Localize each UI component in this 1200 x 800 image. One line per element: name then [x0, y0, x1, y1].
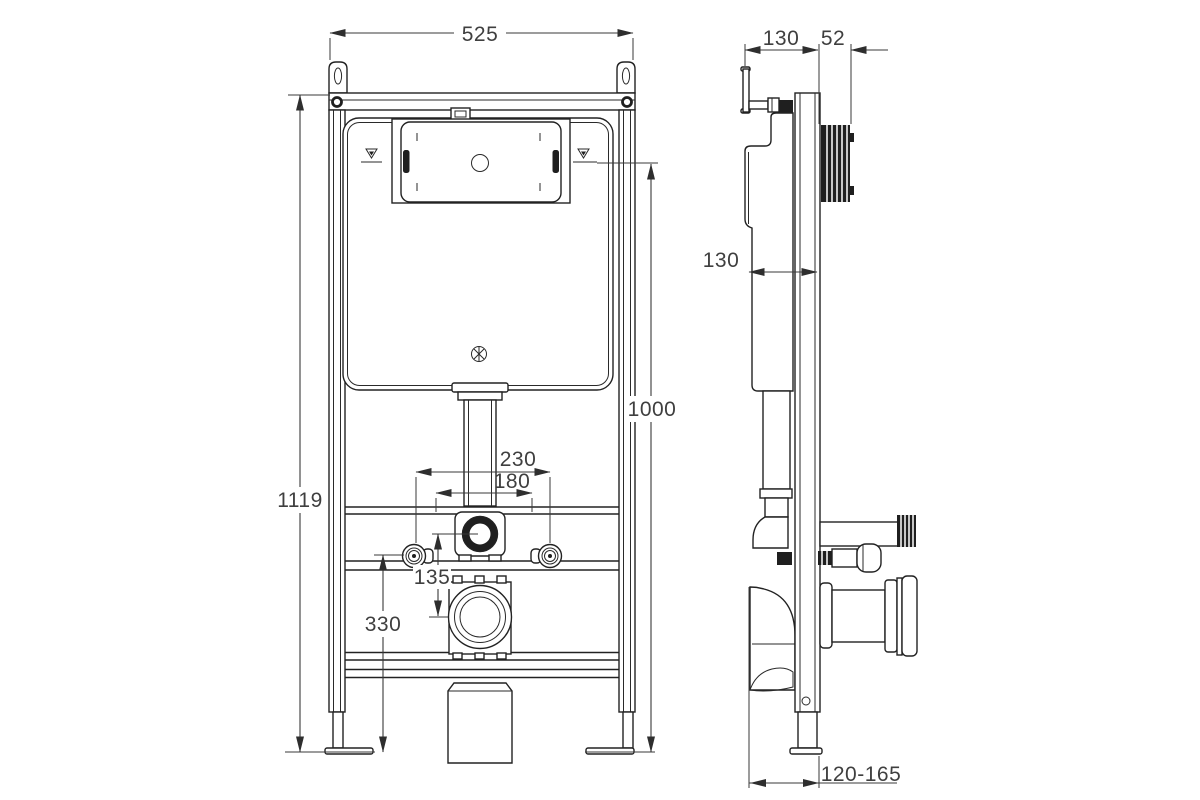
water-inlet-side — [820, 515, 916, 547]
foot-plate-right — [586, 748, 634, 754]
fixing-rod-right — [531, 545, 562, 568]
dim-label-120-165: 120-165 — [821, 763, 902, 786]
outlet-connector-side — [820, 576, 917, 656]
panel-inner — [401, 122, 561, 202]
outlet-socket-front — [449, 576, 512, 659]
bracket-clamp — [779, 100, 793, 113]
cistern-side — [745, 113, 793, 391]
dim-label-130-top: 130 — [763, 27, 800, 50]
cistern-top-clip — [451, 108, 470, 120]
outlet-circle — [449, 586, 512, 649]
dim-label-330: 330 — [365, 613, 402, 636]
dim-label-52: 52 — [821, 27, 845, 50]
mounting-tab-right — [617, 62, 635, 93]
top-crossbar — [329, 93, 635, 110]
frame-column-side — [790, 93, 822, 754]
wall-bracket-side — [741, 67, 793, 113]
bolt-left — [333, 98, 342, 107]
leg-right — [623, 712, 633, 748]
dim-label-1000: 1000 — [628, 398, 677, 421]
soil-elbow-side — [749, 587, 795, 788]
mounting-tab-left — [329, 62, 347, 93]
panel-clip-right — [553, 150, 560, 173]
dim-label-1119: 1119 — [277, 489, 323, 512]
pan-bracket-side — [777, 552, 792, 565]
dim-label-180: 180 — [494, 470, 531, 493]
bolt-right — [623, 98, 632, 107]
dim-side-top-depth: 130 — [745, 27, 818, 66]
flush-elbow-front — [455, 512, 505, 561]
dim-front-width: 525 — [330, 21, 633, 60]
dim-actuator-depth: 52 — [819, 27, 888, 124]
technical-drawing-canvas: 525 1119 1000 230 180 — [0, 0, 1200, 800]
side-view: 130 52 130 120-165 — [703, 27, 917, 788]
panel-clip-left — [403, 150, 410, 173]
foot-plate-side — [790, 748, 822, 754]
valve-stub-side — [818, 544, 881, 572]
fixing-rod-left — [403, 545, 434, 568]
leg-side — [798, 712, 817, 748]
front-view: 525 1119 1000 230 180 — [272, 21, 679, 763]
bottom-bend-front — [448, 683, 512, 763]
leg-left — [333, 712, 343, 748]
flush-actuator-block — [821, 125, 854, 202]
dim-floor-range: 120-165 — [749, 756, 901, 788]
foot-plate-left — [325, 748, 373, 754]
dim-label-230: 230 — [500, 448, 537, 471]
dim-label-525: 525 — [462, 23, 499, 46]
dim-outlet-height: 330 — [362, 555, 404, 752]
flush-pipe-side — [753, 391, 792, 565]
dim-label-130-mid: 130 — [703, 249, 740, 272]
access-panel — [392, 119, 570, 203]
wc-frame-drawing: 525 1119 1000 230 180 — [0, 0, 1200, 800]
dim-label-135: 135 — [414, 566, 451, 589]
